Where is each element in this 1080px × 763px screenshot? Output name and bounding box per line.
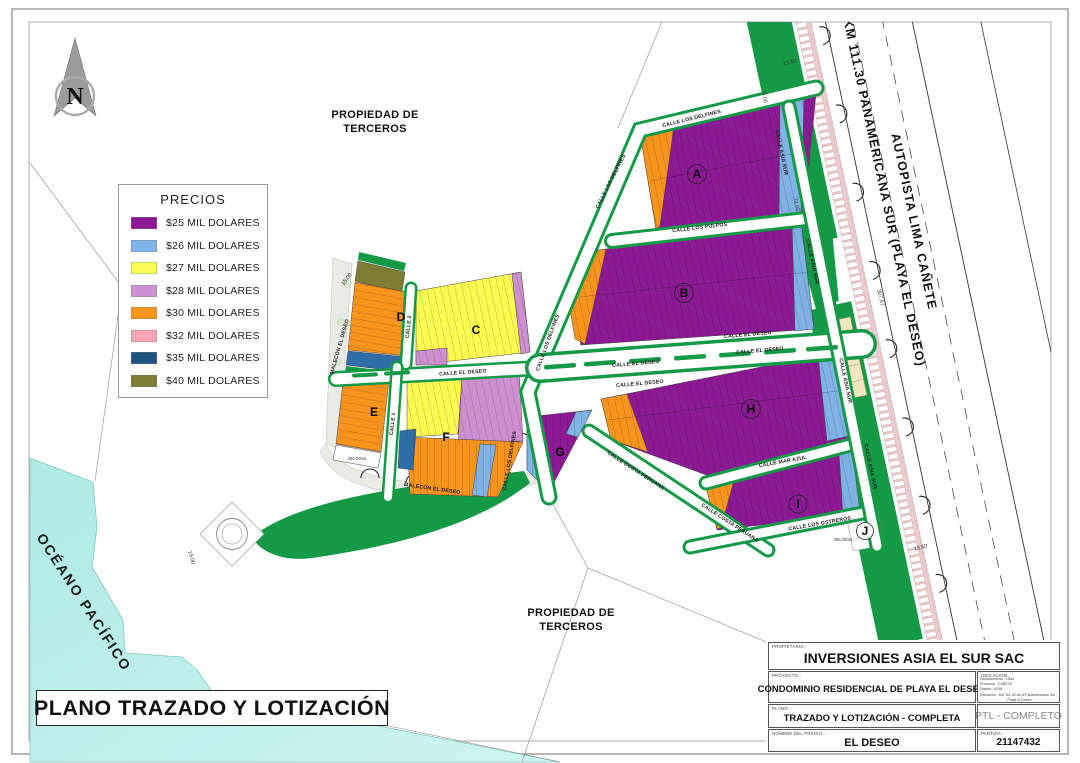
legend-item-label: $28 MIL DOLARES xyxy=(166,285,260,297)
legend-swatch xyxy=(131,375,157,387)
zone-label-h: H xyxy=(747,402,756,416)
plan-title-text: PLANO TRAZADO Y LOTIZACIÓN xyxy=(34,696,390,721)
zone-label-c: C xyxy=(472,323,481,337)
legend-item: $28 MIL DOLARES xyxy=(119,280,267,303)
legend-swatch xyxy=(131,330,157,342)
title-block-propietario: PROPIETARIO : INVERSIONES ASIA EL SUR SA… xyxy=(768,642,1060,670)
codigo-value: PTL - COMPLETO xyxy=(978,705,1059,727)
zone-label-f: F xyxy=(442,430,449,444)
title-block-partida: PARTIDA : 21147432 xyxy=(977,729,1060,752)
lot-420: 420.00m2 xyxy=(348,456,367,461)
predio-value: EL DESEO xyxy=(769,734,975,751)
terceros-label-bottom: PROPIEDAD DE TERCEROS xyxy=(496,606,646,635)
partida-value: 21147432 xyxy=(978,734,1059,751)
legend-swatch xyxy=(131,240,157,252)
legend-item: $25 MIL DOLARES xyxy=(119,212,267,235)
terceros-top-line2: TERCEROS xyxy=(300,122,450,136)
north-compass-icon: N xyxy=(54,38,96,116)
plano-value: TRAZADO Y LOTIZACIÓN - COMPLETA xyxy=(769,709,975,727)
legend-item: $30 MIL DOLARES xyxy=(119,302,267,325)
legend-item-label: $25 MIL DOLARES xyxy=(166,217,260,229)
legend-swatch xyxy=(131,352,157,364)
lot-408: 408.20m2 xyxy=(834,537,853,542)
title-block-plano: PLANO : TRAZADO Y LOTIZACIÓN - COMPLETA xyxy=(768,704,976,728)
legend-item: $27 MIL DOLARES xyxy=(119,257,267,280)
price-legend: PRECIOS $25 MIL DOLARES $26 MIL DOLARES … xyxy=(118,184,268,398)
zone-label-a: A xyxy=(693,167,702,181)
title-block-ubicacion: UBICACIÓN : Departamento : LIMA Provinci… xyxy=(977,671,1060,703)
legend-swatch xyxy=(131,307,157,319)
dim-15-00-b: 15.00 xyxy=(186,550,196,565)
legend-swatch xyxy=(131,262,157,274)
propietario-value: INVERSIONES ASIA EL SUR SAC xyxy=(769,647,1059,669)
terceros-bottom-line1: PROPIEDAD DE xyxy=(496,606,646,620)
legend-item: $40 MIL DOLARES xyxy=(119,370,267,393)
legend-swatch xyxy=(131,217,157,229)
zone-label-j: J xyxy=(862,524,869,538)
legend-item-label: $30 MIL DOLARES xyxy=(166,307,260,319)
legend-item: $32 MIL DOLARES xyxy=(119,325,267,348)
plaza xyxy=(200,502,264,566)
zone-label-g: G xyxy=(555,445,564,459)
plan-sheet: KM 111.30 PANAMERICANA SUR (PLAYA EL DES… xyxy=(0,0,1080,763)
legend-swatch xyxy=(131,285,157,297)
compass-n: N xyxy=(66,84,84,110)
zone-label-b: B xyxy=(680,286,689,300)
zone-label-e: E xyxy=(370,405,378,419)
title-block-codigo: PTL - COMPLETO xyxy=(977,704,1060,728)
ubicacion-label: UBICACIÓN : xyxy=(981,673,1010,678)
street-label: CALLE EL DESEO xyxy=(616,379,664,389)
legend-item-label: $40 MIL DOLARES xyxy=(166,375,260,387)
plan-title: PLANO TRAZADO Y LOTIZACIÓN xyxy=(36,690,388,726)
zone-label-i: I xyxy=(796,497,799,511)
legend-title: PRECIOS xyxy=(119,192,267,207)
legend-item: $35 MIL DOLARES xyxy=(119,347,267,370)
dim-307-67: 307.67 xyxy=(875,289,885,307)
title-block-proyecto: PROYECTO : CONDOMINIO RESIDENCIAL DE PLA… xyxy=(768,671,976,703)
ubicacion-line: Playa el Deseo xyxy=(980,698,1059,703)
proyecto-value: CONDOMINIO RESIDENCIAL DE PLAYA EL DESEO xyxy=(769,676,975,702)
legend-item-label: $35 MIL DOLARES xyxy=(166,352,260,364)
zone-c-block xyxy=(416,272,530,365)
zone-label-d: D xyxy=(397,310,406,324)
legend-item: $26 MIL DOLARES xyxy=(119,235,267,258)
legend-item-label: $32 MIL DOLARES xyxy=(166,330,260,342)
terceros-bottom-line2: TERCEROS xyxy=(496,620,646,634)
legend-item-label: $27 MIL DOLARES xyxy=(166,262,260,274)
title-block-predio: NOMBRE DEL PREDIO : EL DESEO xyxy=(768,729,976,752)
legend-item-label: $26 MIL DOLARES xyxy=(166,240,260,252)
terceros-top-line1: PROPIEDAD DE xyxy=(300,108,450,122)
terceros-label-top: PROPIEDAD DE TERCEROS xyxy=(300,108,450,137)
title-block: PROPIETARIO : INVERSIONES ASIA EL SUR SA… xyxy=(766,640,1062,752)
